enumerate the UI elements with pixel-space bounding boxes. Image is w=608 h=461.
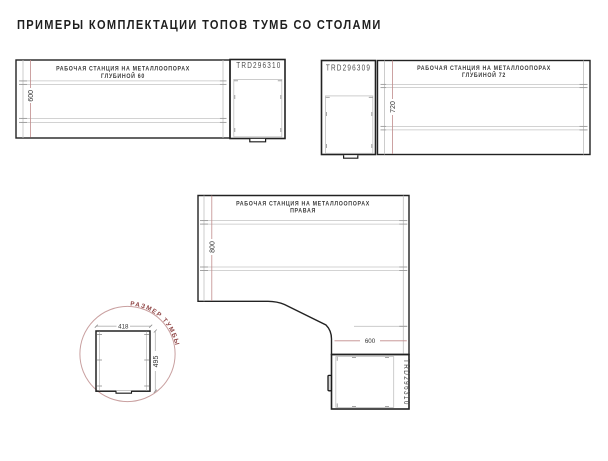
svg-text:TRD296310: TRD296310: [236, 60, 281, 70]
svg-text:ГЛУБИНОЙ 60: ГЛУБИНОЙ 60: [101, 71, 145, 80]
svg-text:418: 418: [118, 324, 129, 331]
svg-text:720: 720: [390, 101, 397, 113]
svg-text:РАБОЧАЯ СТАНЦИЯ НА МЕТАЛЛООПОР: РАБОЧАЯ СТАНЦИЯ НА МЕТАЛЛООПОРАХ: [417, 65, 551, 71]
svg-text:495: 495: [153, 356, 160, 368]
svg-text:ГЛУБИНОЙ 72: ГЛУБИНОЙ 72: [462, 71, 506, 80]
svg-text:РАБОЧАЯ СТАНЦИЯ НА МЕТАЛЛООПОР: РАБОЧАЯ СТАНЦИЯ НА МЕТАЛЛООПОРАХ: [56, 66, 190, 72]
svg-text:800: 800: [209, 241, 216, 253]
svg-text:TRD296310: TRD296310: [402, 359, 412, 406]
svg-text:ПРАВАЯ: ПРАВАЯ: [290, 208, 316, 214]
svg-text:РАБОЧАЯ СТАНЦИЯ НА МЕТАЛЛООПОР: РАБОЧАЯ СТАНЦИЯ НА МЕТАЛЛООПОРАХ: [236, 201, 370, 207]
svg-text:ПРИМЕРЫ КОМПЛЕКТАЦИИ ТОПОВ ТУМ: ПРИМЕРЫ КОМПЛЕКТАЦИИ ТОПОВ ТУМБ СО СТОЛА…: [17, 17, 382, 32]
svg-text:600: 600: [28, 90, 35, 102]
svg-text:600: 600: [365, 338, 376, 345]
svg-text:TRD296309: TRD296309: [326, 63, 371, 73]
